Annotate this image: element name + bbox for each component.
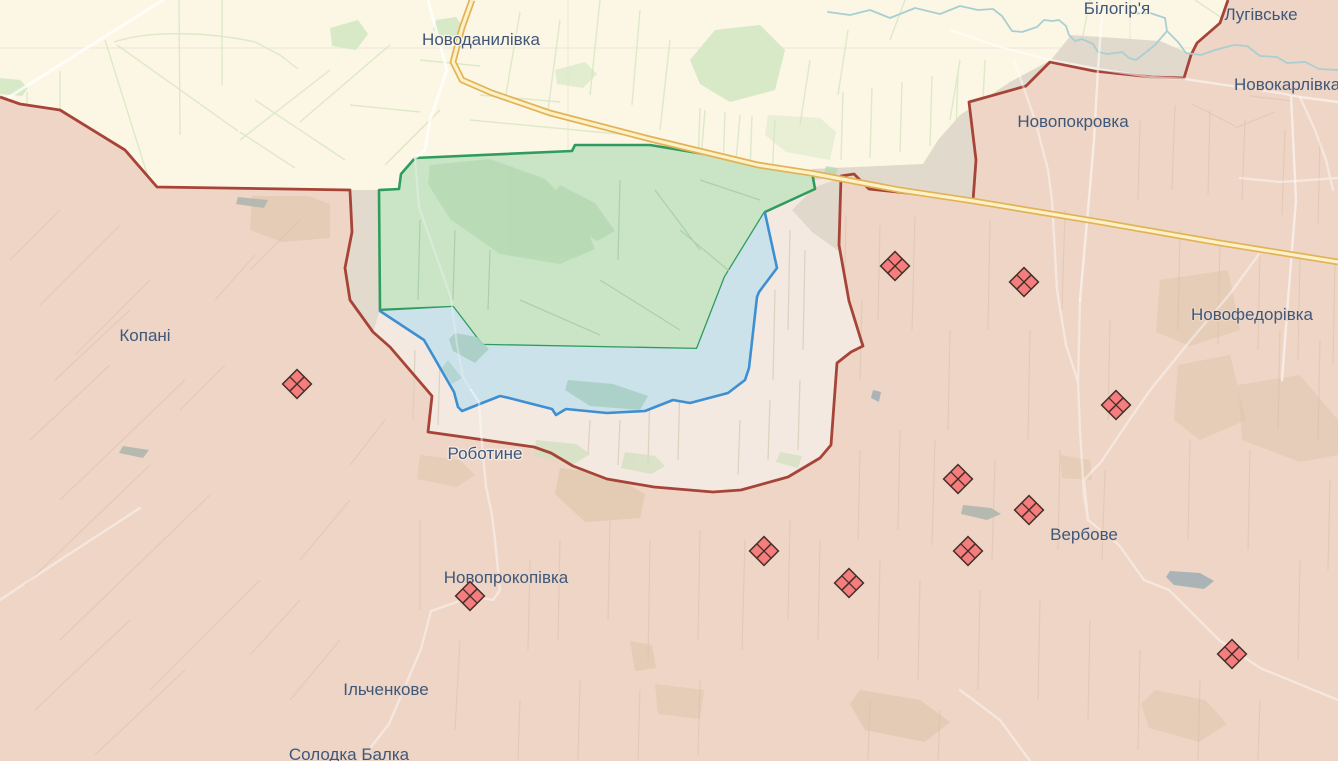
- svg-text:Новокарлівка: Новокарлівка: [1234, 75, 1338, 94]
- svg-text:Новопокровка: Новопокровка: [1017, 112, 1129, 131]
- svg-text:Солодка Балка: Солодка Балка: [289, 745, 410, 761]
- svg-text:Копані: Копані: [119, 326, 170, 345]
- svg-text:Роботине: Роботине: [448, 444, 523, 463]
- svg-text:Новоданилівка: Новоданилівка: [422, 30, 540, 49]
- svg-text:Ільченкове: Ільченкове: [343, 680, 428, 699]
- svg-text:Вербове: Вербове: [1050, 525, 1118, 544]
- svg-text:Білогір'я: Білогір'я: [1084, 0, 1150, 18]
- svg-text:Новопрокопівка: Новопрокопівка: [444, 568, 569, 587]
- svg-text:Лугівське: Лугівське: [1224, 5, 1297, 24]
- svg-text:Новофедорівка: Новофедорівка: [1191, 305, 1314, 324]
